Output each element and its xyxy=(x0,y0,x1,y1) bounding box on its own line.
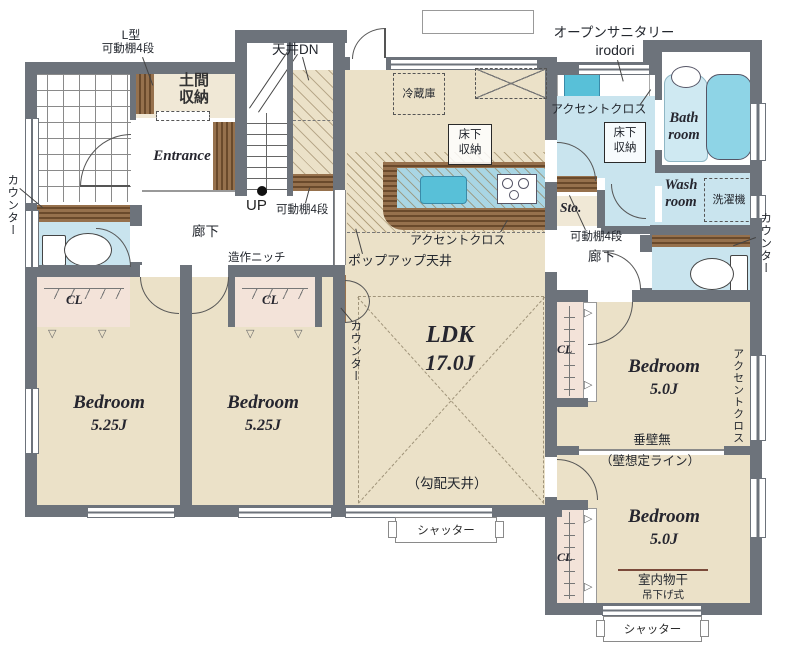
stove-burner xyxy=(502,178,513,189)
door-opening xyxy=(545,140,557,182)
window xyxy=(602,605,702,616)
ldk-size: 17.0J xyxy=(395,350,505,375)
window xyxy=(25,388,39,454)
shelf4-label-left: 可動棚4段 xyxy=(276,204,328,217)
hall-right-label: 廊下 xyxy=(588,249,615,265)
accent-cloth-label-bedroom: アクセントクロス xyxy=(731,348,744,444)
window xyxy=(238,507,332,518)
closet1-label: CL xyxy=(66,293,83,308)
window xyxy=(87,507,175,518)
bedroom2-size: 5.25J xyxy=(206,417,320,435)
opening xyxy=(334,190,346,265)
window xyxy=(750,103,766,161)
wall xyxy=(545,290,762,302)
bedroom1-size: 5.25J xyxy=(54,417,164,435)
wall xyxy=(180,265,192,517)
door-leaf xyxy=(384,28,386,58)
wash-l2: room xyxy=(656,194,706,211)
accent-cloth-label-sanitary: アクセントクロス xyxy=(551,103,646,117)
bath-l2: room xyxy=(660,127,708,144)
ceiling-down-label: 天井DN xyxy=(272,42,319,58)
closet-door-mark: ▷ xyxy=(584,378,592,391)
shutter-tab xyxy=(596,620,605,637)
bath-label: Bath room xyxy=(660,110,708,143)
refrigerator-label: 冷蔵庫 xyxy=(403,88,436,101)
entrance-label: Entrance xyxy=(140,148,224,165)
stove-burner xyxy=(509,190,519,200)
closet4-label: CL xyxy=(557,551,572,565)
closet-door-mark: ▽ xyxy=(48,327,56,340)
toilet-tank xyxy=(42,235,66,266)
door-opening xyxy=(192,265,228,277)
shutter-box: シャッター xyxy=(603,616,702,642)
door-opening xyxy=(640,252,652,288)
closet1 xyxy=(37,277,130,327)
l-shelf-label-line2: 可動棚4段 xyxy=(92,43,164,56)
floor-storage-l2: 収納 xyxy=(605,141,645,156)
closet-door-mark: ▷ xyxy=(584,580,592,593)
slope-ceiling-dash-top xyxy=(358,296,544,297)
hall-left-label: 廊下 xyxy=(192,224,219,240)
ldk-floor xyxy=(345,70,545,505)
floor-plan: 洗濯機 ▽ ▽ ▽ ▽ ▷ ▷ ▷ ▷ xyxy=(0,0,800,666)
shutter-tab xyxy=(700,620,709,637)
up-label: UP xyxy=(246,197,267,214)
doma-l1: 土間 xyxy=(152,72,236,89)
wall xyxy=(228,277,235,327)
shutter-tab xyxy=(495,521,504,538)
floor-storage-l2: 収納 xyxy=(449,143,491,158)
door-arc xyxy=(352,28,385,59)
popup-ceiling-label: ポップアップ天井 xyxy=(348,254,452,269)
niche-label: 造作ニッチ xyxy=(228,252,286,265)
kitchen-sink xyxy=(420,176,467,204)
bedroom3-name: Bedroom xyxy=(608,356,720,378)
stair-center-line xyxy=(266,113,267,193)
bath-l1: Bath xyxy=(660,110,708,127)
l-shelf-label-line1: L型 xyxy=(105,29,157,43)
window xyxy=(750,355,766,441)
door-opening xyxy=(588,290,632,302)
floor-storage-box-sanitary: 床下 収納 xyxy=(604,122,646,163)
shutter-tab xyxy=(388,521,397,538)
window xyxy=(25,210,39,268)
door-leaf xyxy=(80,185,130,187)
stair-treads xyxy=(247,113,287,196)
wall xyxy=(724,446,752,455)
ldk-name: LDK xyxy=(395,322,505,350)
bedroom4-name: Bedroom xyxy=(608,506,720,528)
stove-burner xyxy=(518,178,529,189)
bath-counter-bowl xyxy=(671,66,701,88)
indoor-drying-label: 室内物干 xyxy=(608,573,718,587)
wall xyxy=(548,398,588,407)
closet2-label: CL xyxy=(262,293,279,308)
window xyxy=(578,64,650,75)
toilet-bowl xyxy=(690,258,734,290)
open-sanitary-label: オープンサニタリー xyxy=(548,25,680,41)
bedroom1-name: Bedroom xyxy=(54,392,164,414)
wall xyxy=(650,40,762,52)
sto-label: Sto. xyxy=(560,200,581,216)
no-hanging-wall-label: 垂壁無 xyxy=(618,433,686,447)
sliding-door xyxy=(156,111,210,121)
shutter-label: シャッター xyxy=(624,621,682,637)
assumed-wall-line xyxy=(578,449,726,451)
wall xyxy=(548,500,588,510)
doma-label: 土間 収納 xyxy=(152,72,236,107)
floor-storage-l1: 床下 xyxy=(605,126,645,141)
closet-door-mark: ▷ xyxy=(584,512,592,525)
wall xyxy=(235,43,247,196)
window xyxy=(25,118,39,204)
assumed-wall-label: （壁想定ライン） xyxy=(592,454,708,468)
shutter-label: シャッター xyxy=(417,522,475,538)
bedroom3-size: 5.0J xyxy=(608,381,720,399)
toilet-left-counter xyxy=(37,205,130,222)
washing-machine: 洗濯機 xyxy=(704,178,754,222)
counter-label-ldk: カウンター xyxy=(348,320,361,383)
closet1-hanger-pipe xyxy=(44,288,124,299)
door-opening xyxy=(130,226,142,262)
wall xyxy=(650,225,762,235)
wall xyxy=(25,265,345,277)
slope-ceiling-label: （勾配天井） xyxy=(392,476,502,492)
wall xyxy=(315,277,322,327)
wall xyxy=(557,446,579,455)
shutter-box: シャッター xyxy=(395,517,497,543)
wall xyxy=(130,62,136,120)
bedroom2-name: Bedroom xyxy=(206,392,320,414)
refrigerator-box: 冷蔵庫 xyxy=(393,73,445,115)
washing-machine-label: 洗濯機 xyxy=(713,194,746,207)
wash-l1: Wash xyxy=(656,177,706,194)
bay-ledge xyxy=(422,10,534,34)
wall xyxy=(287,43,293,196)
wash-label: Wash room xyxy=(656,177,706,210)
floor-storage-l1: 床下 xyxy=(449,128,491,143)
closet-door-mark: ▽ xyxy=(294,327,302,340)
door-opening xyxy=(545,457,557,497)
wall xyxy=(333,265,345,517)
window xyxy=(750,478,766,538)
stair-up-dot xyxy=(257,186,267,196)
doma-l2: 収納 xyxy=(152,89,236,106)
closet3-label: CL xyxy=(557,343,572,357)
open-sanitary-sub-label: irodori xyxy=(575,42,655,58)
wall xyxy=(597,190,605,228)
closet-door-mark: ▽ xyxy=(246,327,254,340)
accent-cloth-label-kitchen: アクセントクロス xyxy=(410,234,505,248)
entrance-step-line xyxy=(142,190,236,192)
wall xyxy=(655,165,762,173)
slope-ceiling-dash-right xyxy=(543,297,544,503)
drying-pole-line xyxy=(618,569,708,571)
floor-storage-box-kitchen: 床下 収納 xyxy=(448,124,492,165)
closet-door-mark: ▽ xyxy=(98,327,106,340)
counter-label-left: カウンター xyxy=(5,174,18,237)
counter-label-right: カウンター xyxy=(758,212,771,275)
vanity-sink xyxy=(564,74,600,97)
bathtub xyxy=(706,74,752,160)
door-opening xyxy=(140,265,180,277)
opening xyxy=(545,230,557,272)
pantry-cabinet-box xyxy=(475,68,547,99)
hanging-type-label: 吊下げ式 xyxy=(618,589,708,601)
bedroom4-size: 5.0J xyxy=(608,531,720,549)
shelf4-label-right: 可動棚4段 xyxy=(570,231,622,244)
